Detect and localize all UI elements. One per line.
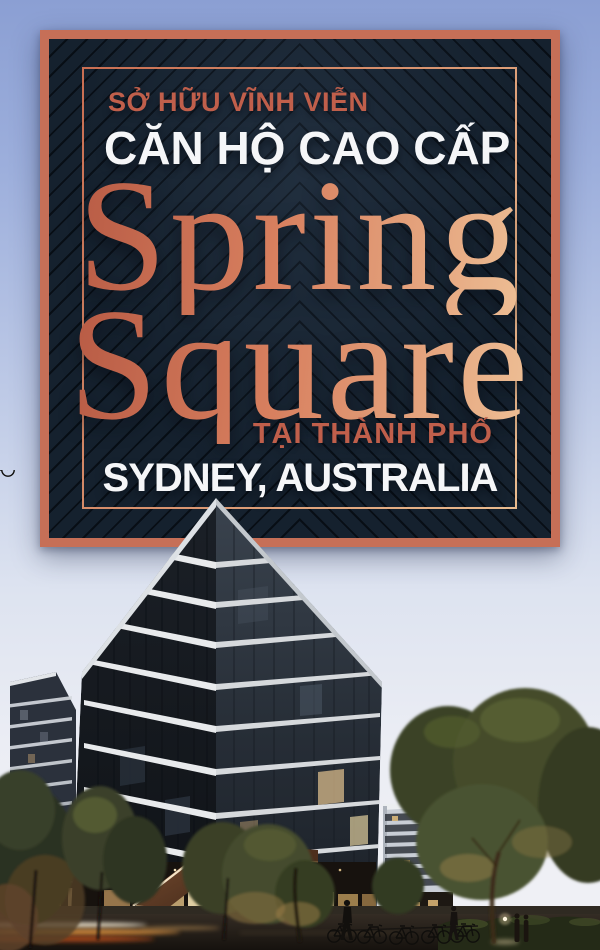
tagline-in-city: TẠI THÀNH PHỐ	[253, 420, 493, 449]
building-photo	[0, 470, 600, 950]
poster-root: SỞ HỮU VĨNH VIỄN CĂN HỘ CAO CẤP Spring S…	[0, 0, 600, 950]
tagline-own-forever: SỞ HỮU VĨNH VIỄN	[108, 89, 368, 116]
